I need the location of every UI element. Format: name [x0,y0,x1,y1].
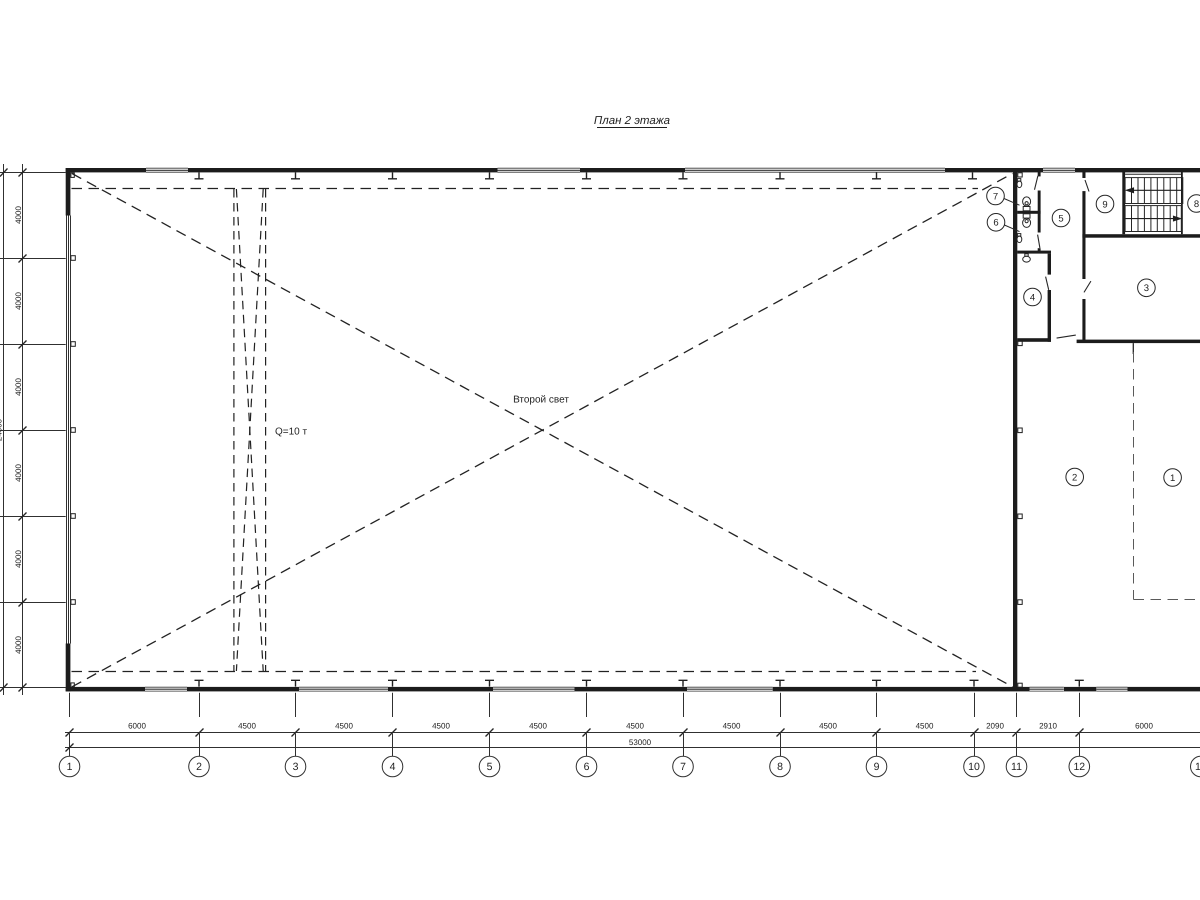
svg-text:53000: 53000 [629,738,652,747]
svg-text:6: 6 [584,761,590,773]
svg-text:6000: 6000 [1135,722,1153,731]
svg-text:9: 9 [1102,199,1107,210]
svg-text:План 2 этажа: План 2 этажа [594,115,670,127]
svg-text:4: 4 [1030,292,1035,303]
svg-text:4500: 4500 [238,722,256,731]
svg-text:4500: 4500 [916,722,934,731]
svg-text:Второй свет: Второй свет [513,395,569,406]
svg-text:4500: 4500 [626,722,644,731]
svg-text:2: 2 [1072,472,1077,483]
svg-text:24000: 24000 [0,418,4,441]
svg-text:3: 3 [1144,283,1149,294]
svg-text:5: 5 [487,761,493,773]
svg-text:2: 2 [196,761,202,773]
svg-text:4500: 4500 [723,722,741,731]
svg-text:2910: 2910 [1039,722,1057,731]
svg-text:2090: 2090 [986,722,1004,731]
svg-text:4000: 4000 [14,636,23,654]
svg-text:4: 4 [390,761,396,773]
svg-text:4500: 4500 [819,722,837,731]
svg-text:10: 10 [968,761,980,773]
svg-text:3: 3 [293,761,299,773]
svg-text:5: 5 [1058,213,1063,224]
svg-text:12: 12 [1073,761,1085,773]
svg-text:7: 7 [993,191,998,202]
svg-text:4000: 4000 [14,464,23,482]
svg-text:1: 1 [1170,473,1175,484]
svg-text:4500: 4500 [335,722,353,731]
svg-text:8: 8 [1194,199,1199,210]
svg-text:9: 9 [874,761,880,773]
svg-text:4500: 4500 [529,722,547,731]
svg-text:4000: 4000 [14,550,23,568]
svg-text:13: 13 [1195,761,1200,773]
svg-text:4000: 4000 [14,206,23,224]
svg-text:6000: 6000 [128,722,146,731]
svg-text:1: 1 [67,761,73,773]
svg-text:4000: 4000 [14,292,23,310]
svg-text:Q=10 т: Q=10 т [275,427,308,438]
svg-text:4000: 4000 [14,378,23,396]
svg-text:11: 11 [1011,761,1022,773]
svg-text:6: 6 [993,218,998,229]
svg-text:4500: 4500 [432,722,450,731]
svg-text:7: 7 [680,761,686,773]
svg-text:8: 8 [777,761,783,773]
